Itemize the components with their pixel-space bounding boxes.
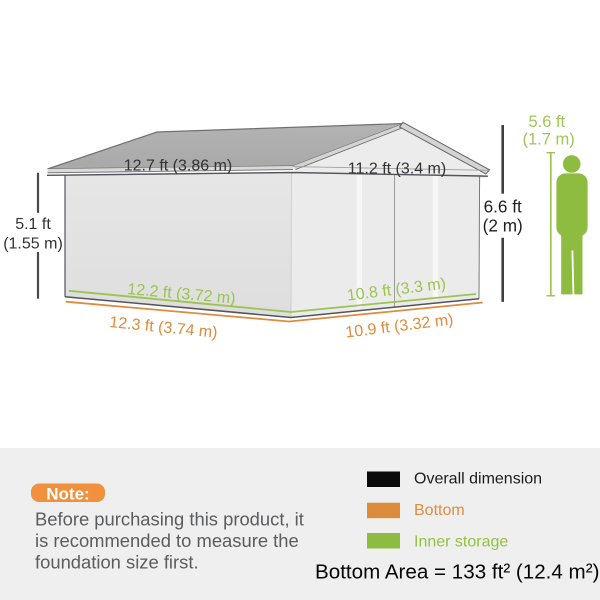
svg-text:5.6 ft: 5.6 ft <box>528 113 565 131</box>
svg-text:10.9 ft (3.32 m): 10.9 ft (3.32 m) <box>345 311 455 341</box>
svg-text:(1.55 m): (1.55 m) <box>3 236 63 253</box>
svg-text:12.3 ft (3.74 m): 12.3 ft (3.74 m) <box>109 314 219 342</box>
svg-text:Inner storage: Inner storage <box>414 533 508 550</box>
svg-text:12.7 ft (3.86 m): 12.7 ft (3.86 m) <box>124 158 233 175</box>
svg-text:6.6 ft: 6.6 ft <box>484 196 522 216</box>
svg-text:Before purchasing this product: Before purchasing this product, it <box>35 509 304 530</box>
svg-text:(1.7 m): (1.7 m) <box>522 131 574 149</box>
svg-text:(2 m): (2 m) <box>483 215 523 235</box>
svg-text:is recommended to measure the: is recommended to measure the <box>35 530 299 551</box>
svg-text:11.2 ft (3.4 m): 11.2 ft (3.4 m) <box>348 161 446 178</box>
svg-text:Bottom Area = 133 ft² (12.4 m²: Bottom Area = 133 ft² (12.4 m²) <box>315 561 599 584</box>
svg-text:foundation size first.: foundation size first. <box>35 552 199 573</box>
svg-text:Bottom: Bottom <box>414 502 465 519</box>
svg-text:Note:: Note: <box>46 485 89 504</box>
svg-text:Overall dimension: Overall dimension <box>414 471 542 488</box>
svg-text:5.1 ft: 5.1 ft <box>15 216 51 233</box>
